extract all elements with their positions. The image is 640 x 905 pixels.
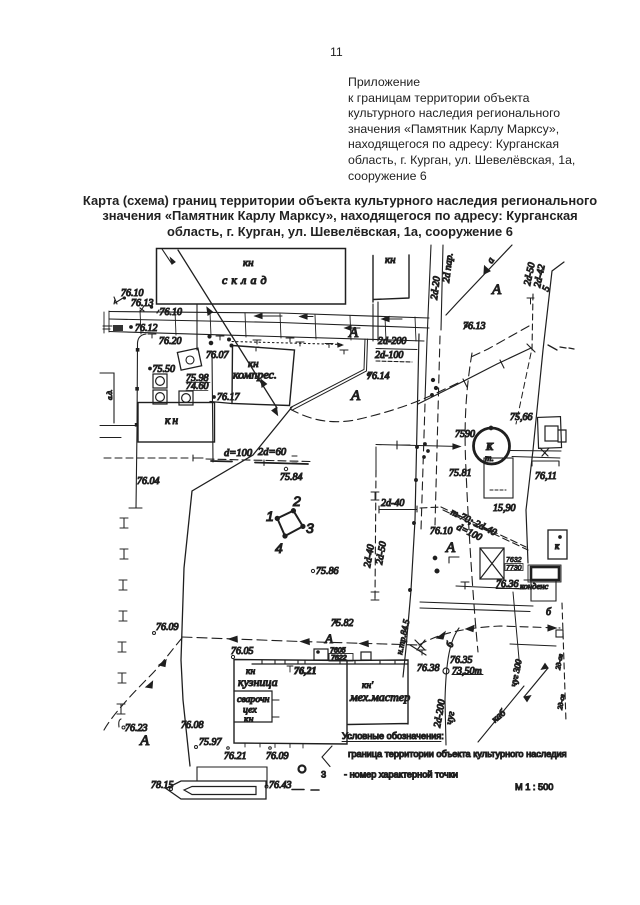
svg-text:75.86: 75.86: [316, 566, 339, 577]
svg-text:компрес.: компрес.: [233, 368, 277, 382]
svg-text:А: А: [491, 282, 502, 298]
svg-text:76.43: 76.43: [269, 780, 292, 791]
svg-text:к: к: [555, 541, 560, 551]
svg-text:а: а: [485, 256, 497, 266]
svg-text:76,11: 76,11: [535, 471, 557, 482]
svg-text:сварочн: сварочн: [237, 694, 270, 705]
svg-text:кн: кн: [243, 257, 254, 269]
svg-text:76,21: 76,21: [294, 666, 317, 677]
svg-text:76.17: 76.17: [217, 392, 241, 403]
svg-text:75.50: 75.50: [153, 364, 176, 375]
svg-text:кн: кн: [244, 714, 254, 725]
svg-text:граница территории объекта кул: граница территории объекта культурного н…: [348, 749, 567, 759]
svg-text:кн: кн: [385, 254, 396, 266]
svg-text:7730: 7730: [506, 565, 522, 572]
svg-text:б: б: [546, 607, 552, 618]
svg-text:76.38: 76.38: [417, 663, 440, 674]
svg-text:76.09: 76.09: [156, 622, 179, 633]
svg-text:А: А: [139, 733, 150, 749]
svg-text:75.97: 75.97: [199, 737, 223, 748]
svg-text:чуг: чуг: [444, 711, 457, 726]
svg-text:2: 2: [292, 493, 301, 509]
svg-text:2d-50: 2d-50: [374, 541, 389, 566]
svg-text:76.14: 76.14: [367, 371, 390, 382]
svg-text:75,66: 75,66: [510, 412, 533, 423]
svg-text:2d-100: 2d-100: [375, 350, 403, 361]
svg-text:15,90: 15,90: [493, 503, 516, 514]
svg-text:75.81: 75.81: [449, 468, 472, 479]
svg-text:А: А: [445, 540, 456, 556]
svg-text:К: К: [485, 442, 494, 453]
svg-text:2d=60: 2d=60: [258, 447, 287, 458]
svg-text:3: 3: [306, 520, 314, 536]
svg-text:М 1 : 500: М 1 : 500: [515, 782, 553, 792]
svg-text:2d-40: 2d-40: [381, 498, 404, 509]
svg-text:конденс: конденс: [520, 581, 549, 591]
svg-text:3: 3: [321, 770, 326, 780]
svg-text:а.д.: а.д.: [106, 389, 114, 400]
svg-text:склад: склад: [222, 273, 271, 287]
svg-text:76.20: 76.20: [159, 336, 182, 347]
svg-text:76.10: 76.10: [160, 307, 183, 318]
svg-text:Условные обозначения:: Условные обозначения:: [342, 731, 444, 741]
svg-text:76.12: 76.12: [135, 323, 158, 334]
svg-text:- номер характерной точки: - номер характерной точки: [344, 770, 458, 780]
svg-text:76.08: 76.08: [181, 720, 204, 731]
svg-text:7632: 7632: [506, 557, 522, 564]
svg-text:А: А: [350, 388, 361, 404]
svg-text:каб: каб: [490, 707, 509, 725]
svg-text:чуг 300: чуг 300: [508, 658, 524, 688]
svg-text:76.04: 76.04: [137, 476, 160, 487]
svg-text:73,50m: 73,50m: [452, 666, 482, 677]
svg-text:н.тр.84.5: н.тр.84.5: [394, 618, 411, 656]
svg-text:76.10: 76.10: [430, 526, 453, 537]
svg-text:А: А: [324, 631, 333, 646]
svg-text:2d пар.: 2d пар.: [441, 252, 456, 283]
svg-text:76.07: 76.07: [206, 350, 230, 361]
svg-text:б: б: [444, 640, 456, 649]
svg-text:76.05: 76.05: [231, 646, 254, 657]
svg-text:76.21: 76.21: [224, 751, 247, 762]
svg-text:76.09: 76.09: [266, 751, 289, 762]
svg-text:75.84: 75.84: [280, 472, 303, 483]
svg-text:А: А: [348, 325, 359, 341]
svg-text:75.82: 75.82: [331, 618, 354, 629]
svg-text:2д-ав: 2д-ав: [554, 653, 565, 670]
svg-text:2d-200: 2d-200: [378, 336, 406, 347]
svg-text:4: 4: [275, 540, 283, 556]
svg-text:кн: кн: [165, 415, 180, 427]
svg-text:7590: 7590: [455, 429, 475, 440]
svg-text:1: 1: [266, 508, 274, 524]
svg-text:7622: 7622: [331, 655, 347, 662]
svg-text:кузница: кузница: [238, 675, 278, 689]
svg-text:76.35: 76.35: [450, 655, 473, 666]
svg-text:78.15: 78.15: [151, 780, 174, 791]
svg-text:мех.мастер: мех.мастер: [349, 690, 410, 704]
